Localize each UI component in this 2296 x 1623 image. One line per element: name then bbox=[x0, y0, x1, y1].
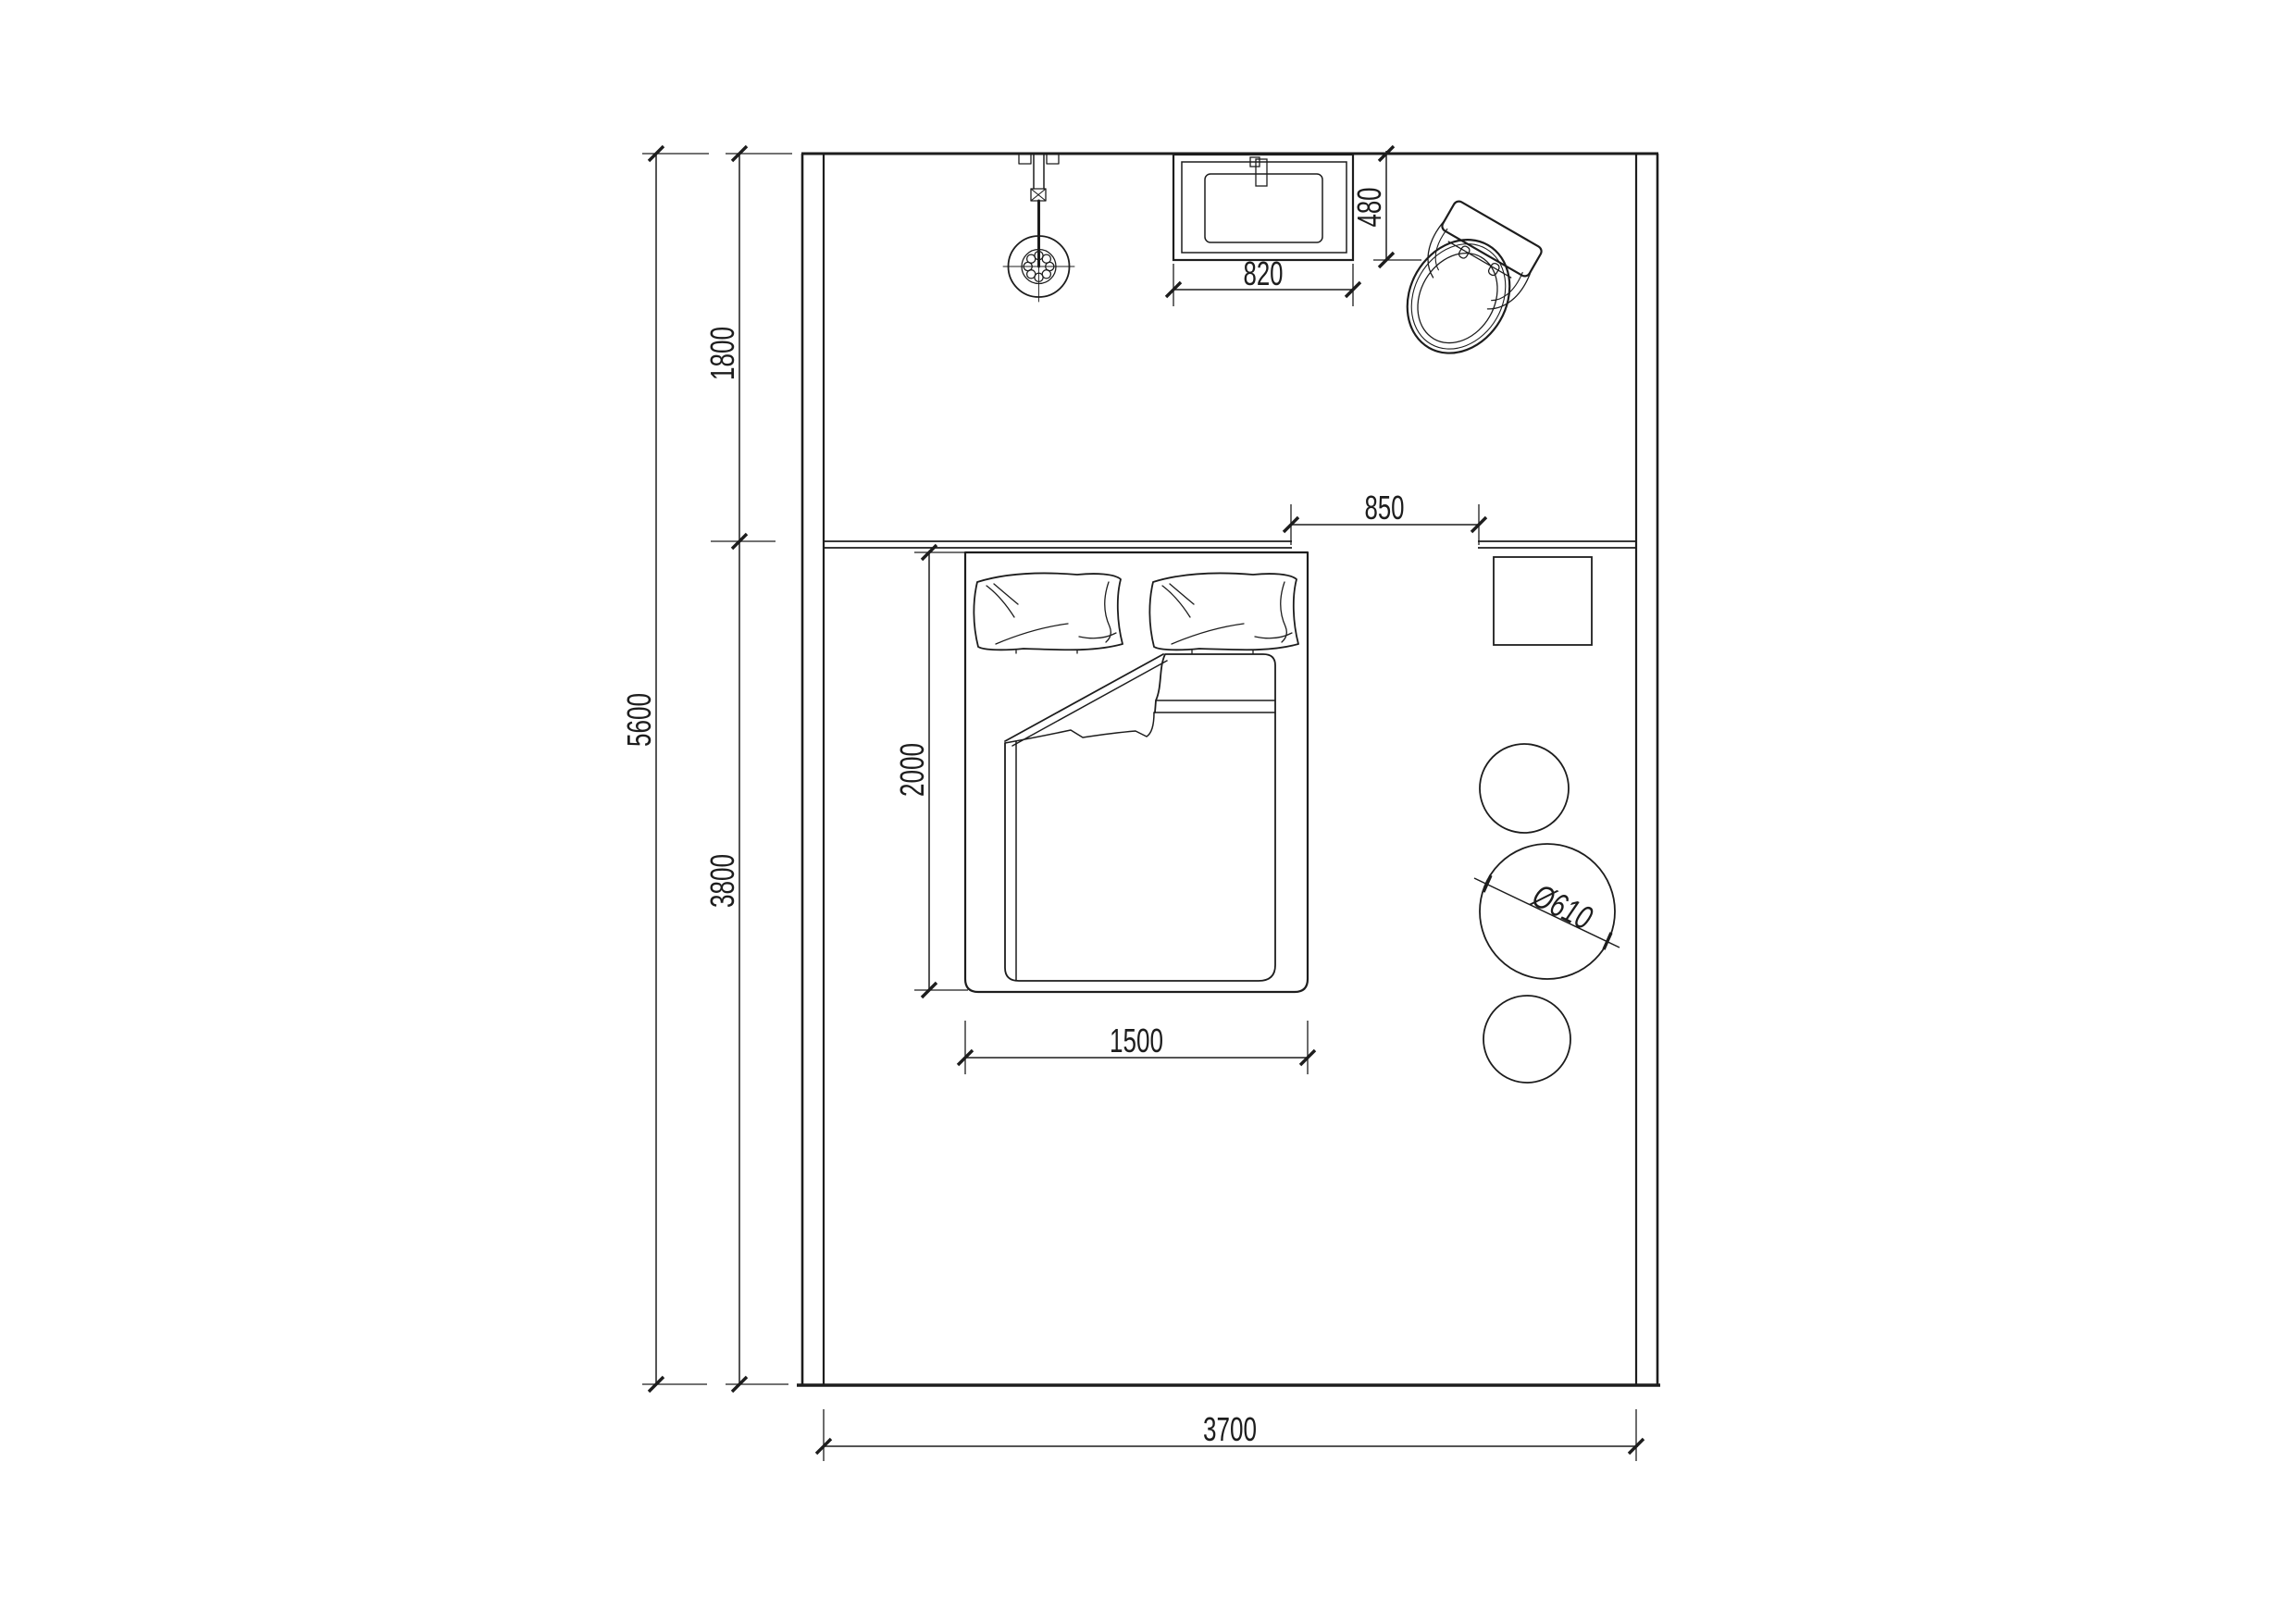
vanity-counter bbox=[1173, 155, 1353, 260]
side-table-square bbox=[1494, 557, 1592, 645]
dim-label-480: 480 bbox=[1350, 188, 1388, 228]
dim-label-1800: 1800 bbox=[703, 327, 741, 380]
pillow-right bbox=[1149, 574, 1298, 653]
dim-label-3800: 3800 bbox=[703, 854, 741, 908]
dim-label-3700: 3700 bbox=[1203, 1410, 1257, 1448]
dim-table-diameter-610: Ø610 bbox=[1474, 875, 1620, 949]
vanity-basin bbox=[1173, 155, 1353, 260]
faucet-spout bbox=[1256, 159, 1267, 186]
stool-circle-top bbox=[1480, 744, 1569, 833]
dim-label-dia-610: Ø610 bbox=[1526, 876, 1598, 937]
duvet-outline bbox=[1005, 654, 1275, 981]
dim-label-1500: 1500 bbox=[1110, 1022, 1163, 1059]
dim-room-depth-5600: 5600 bbox=[620, 146, 709, 1392]
basin-inner bbox=[1205, 174, 1322, 242]
dim-basin-820: 820 bbox=[1166, 254, 1360, 306]
double-bed bbox=[965, 552, 1308, 992]
stool-circle-bottom bbox=[1483, 996, 1570, 1083]
dim-label-5600: 5600 bbox=[620, 693, 658, 747]
dim-zones-1800-3800: 1800 3800 bbox=[703, 146, 792, 1392]
dim-basin-480: 480 bbox=[1350, 146, 1421, 267]
pillow-left bbox=[974, 574, 1123, 653]
dim-label-820: 820 bbox=[1244, 254, 1284, 292]
pillow-creases bbox=[987, 582, 1116, 653]
dim-bed-length-2000: 2000 bbox=[893, 545, 970, 997]
duvet-fold-diagonal-b bbox=[1012, 661, 1167, 746]
dim-opening-850: 850 bbox=[1284, 489, 1486, 545]
dim-label-2000: 2000 bbox=[893, 743, 931, 797]
dim-bed-width-1500: 1500 bbox=[958, 1021, 1315, 1074]
toilet-hinge-left bbox=[1458, 245, 1471, 260]
toilet bbox=[1384, 199, 1545, 374]
shower-mount-plate-right bbox=[1047, 154, 1059, 164]
shower-mount-plate-left bbox=[1019, 154, 1031, 164]
headboard-partition bbox=[824, 541, 1636, 548]
dim-label-850: 850 bbox=[1365, 489, 1405, 527]
toilet-bowl-outer bbox=[1387, 221, 1530, 372]
duvet bbox=[1005, 654, 1275, 981]
duvet-fold-diagonal-a bbox=[1005, 654, 1163, 741]
floor-plan: 5600 1800 3800 3700 820 480 bbox=[620, 146, 1660, 1461]
pillow-creases bbox=[1162, 582, 1292, 653]
duvet-fold-underside bbox=[1005, 712, 1154, 743]
shower-head bbox=[1003, 154, 1074, 302]
dim-room-width-3700: 3700 bbox=[816, 1409, 1644, 1461]
floor-plan-canvas: 5600 1800 3800 3700 820 480 bbox=[0, 0, 2296, 1623]
